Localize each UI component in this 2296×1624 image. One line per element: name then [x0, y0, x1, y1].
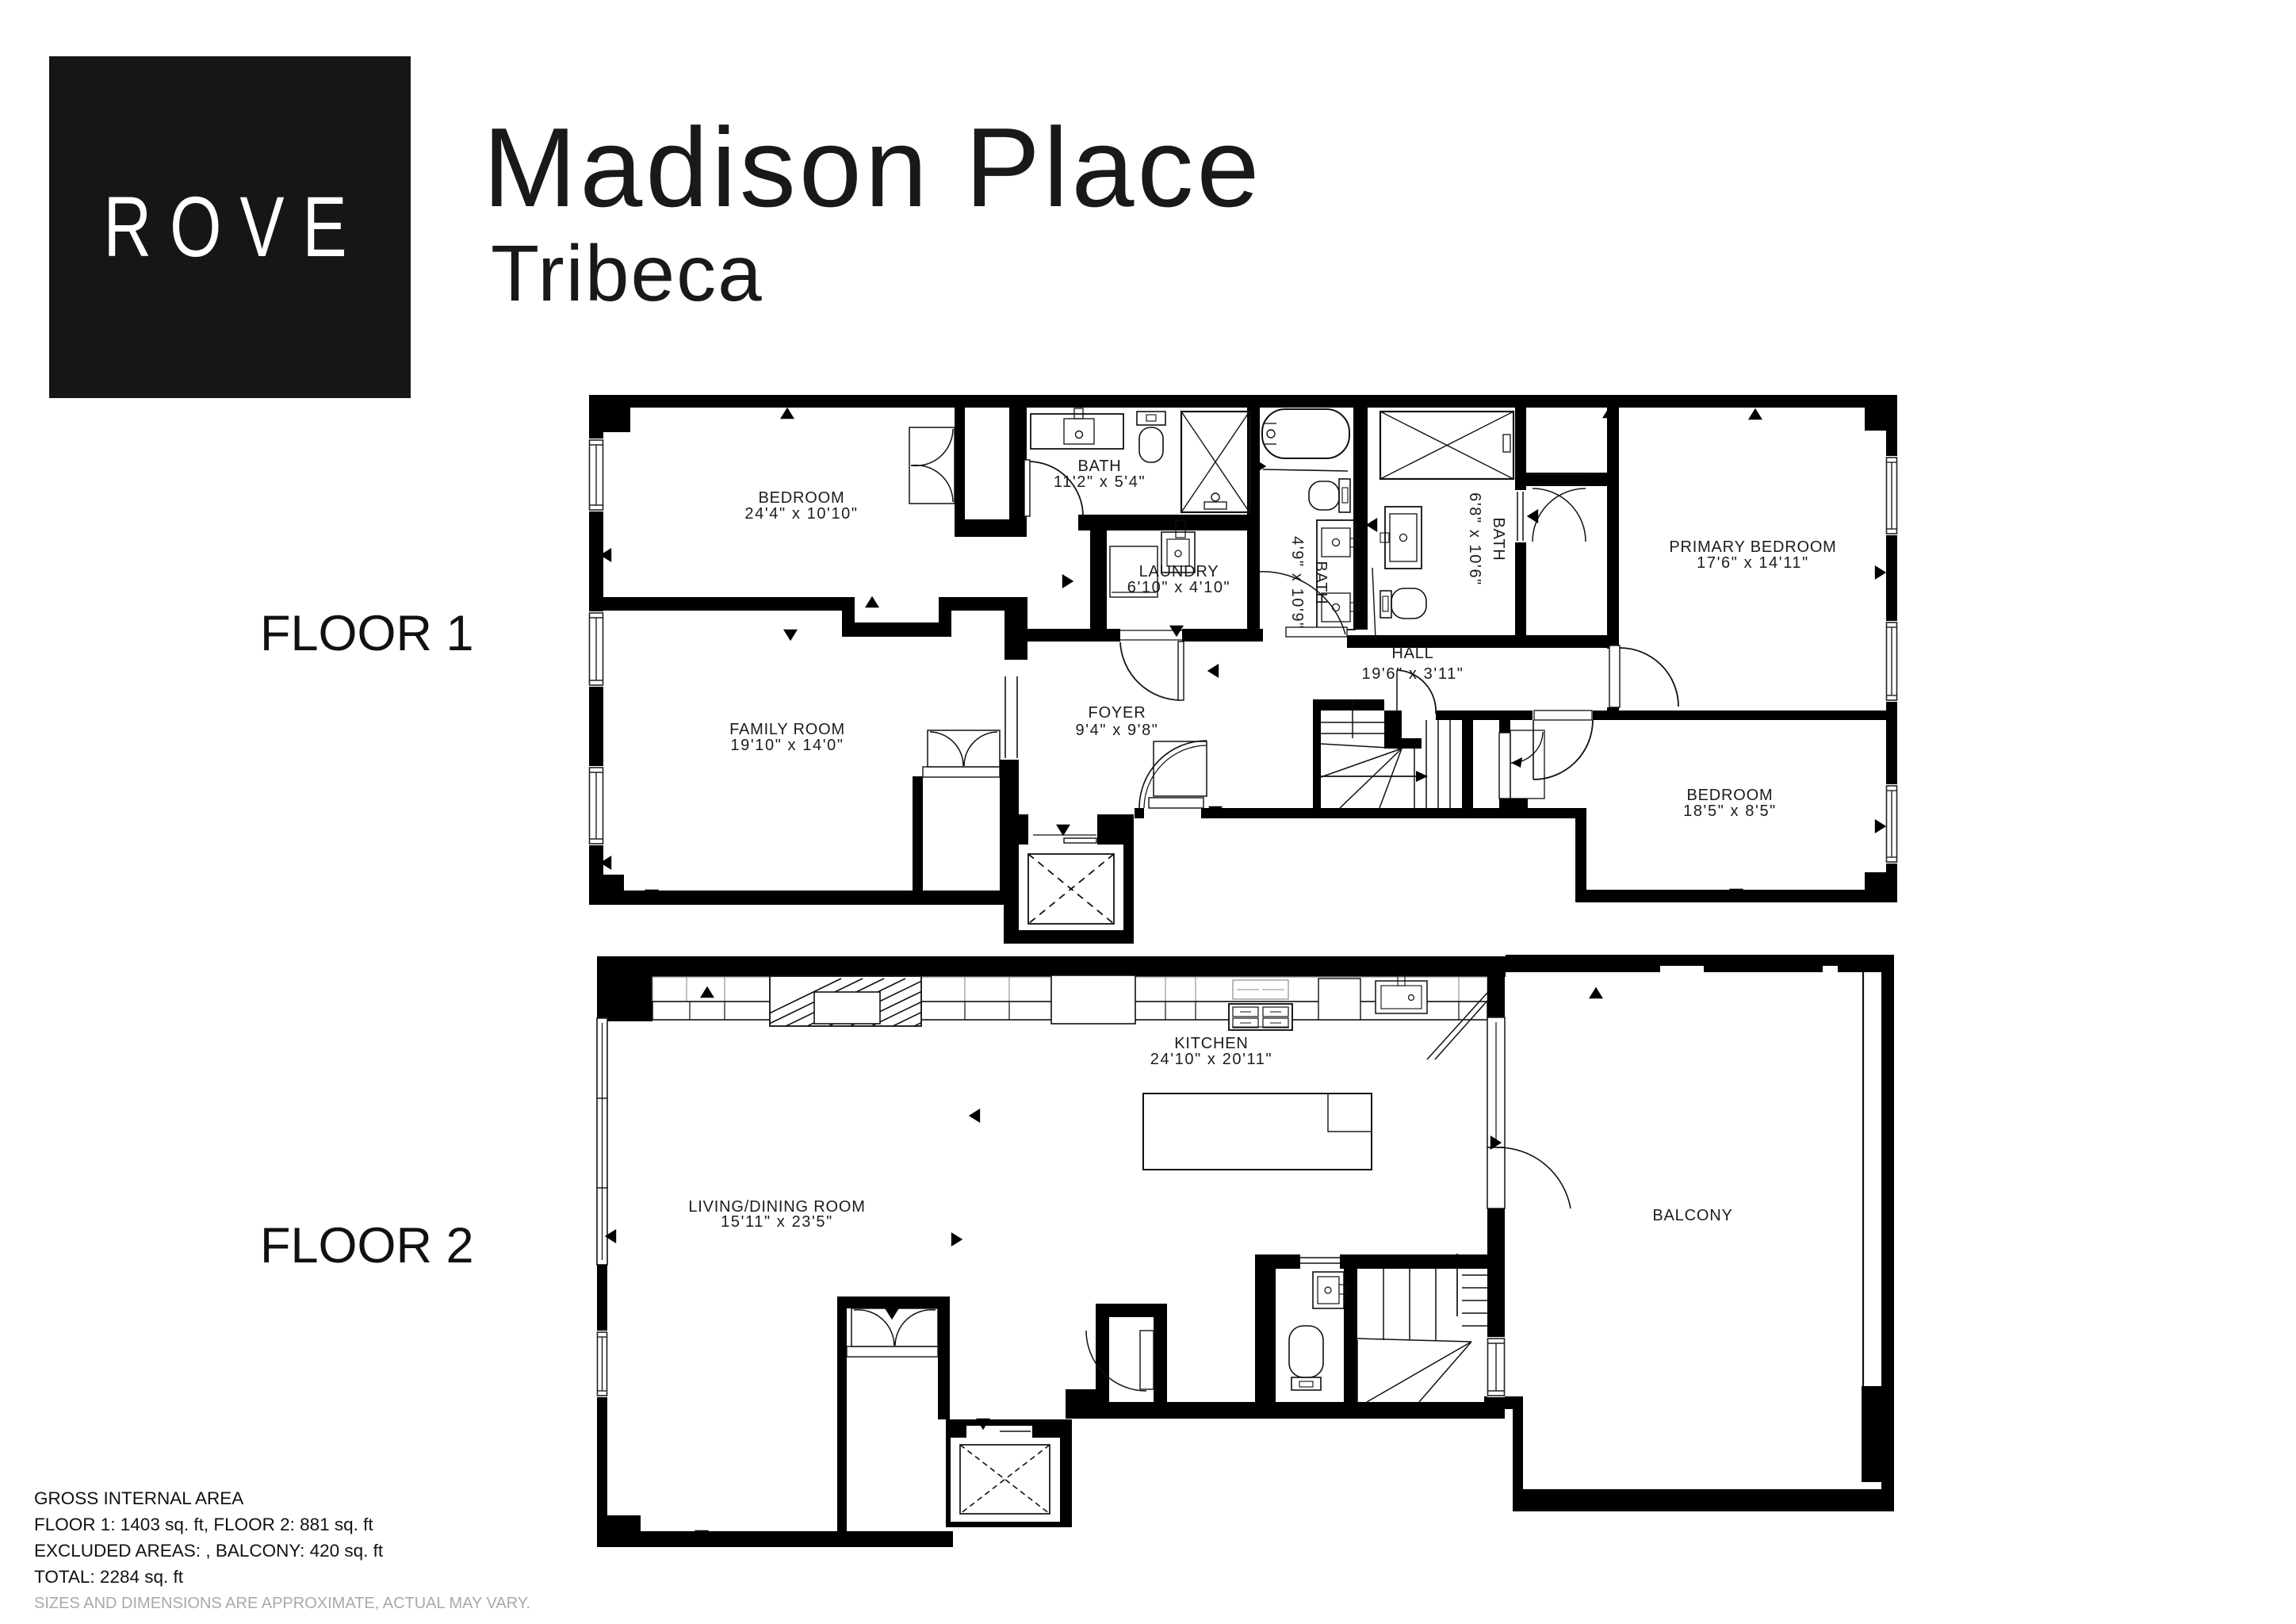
svg-text:9'4" x 9'8": 9'4" x 9'8"	[1075, 722, 1158, 739]
svg-text:BEDROOM: BEDROOM	[759, 489, 845, 507]
svg-text:BATH: BATH	[1312, 561, 1330, 604]
svg-text:11'2" x 5'4": 11'2" x 5'4"	[1054, 473, 1146, 491]
svg-text:FAMILY ROOM: FAMILY ROOM	[729, 721, 845, 738]
svg-text:HALL: HALL	[1391, 645, 1433, 662]
svg-text:4'9" x 10'9": 4'9" x 10'9"	[1288, 536, 1306, 630]
svg-text:17'6" x 14'11": 17'6" x 14'11"	[1697, 554, 1809, 572]
svg-text:6'8" x 10'6": 6'8" x 10'6"	[1466, 492, 1483, 586]
svg-text:LAUNDRY: LAUNDRY	[1139, 563, 1219, 580]
svg-text:6'10" x 4'10": 6'10" x 4'10"	[1127, 579, 1231, 596]
svg-text:24'4" x 10'10": 24'4" x 10'10"	[744, 505, 858, 523]
svg-text:FOYER: FOYER	[1089, 704, 1146, 722]
svg-text:24'10" x 20'11": 24'10" x 20'11"	[1150, 1051, 1272, 1068]
svg-text:KITCHEN: KITCHEN	[1174, 1035, 1248, 1052]
svg-text:BEDROOM: BEDROOM	[1687, 787, 1774, 804]
svg-text:18'5" x 8'5": 18'5" x 8'5"	[1683, 802, 1777, 820]
svg-text:BATH: BATH	[1490, 517, 1507, 561]
svg-text:19'10" x 14'0": 19'10" x 14'0"	[730, 737, 844, 754]
svg-text:BATH: BATH	[1077, 458, 1121, 475]
svg-text:BALCONY: BALCONY	[1652, 1207, 1732, 1224]
svg-text:15'11" x 23'5": 15'11" x 23'5"	[721, 1213, 833, 1231]
svg-text:PRIMARY BEDROOM: PRIMARY BEDROOM	[1669, 538, 1836, 556]
